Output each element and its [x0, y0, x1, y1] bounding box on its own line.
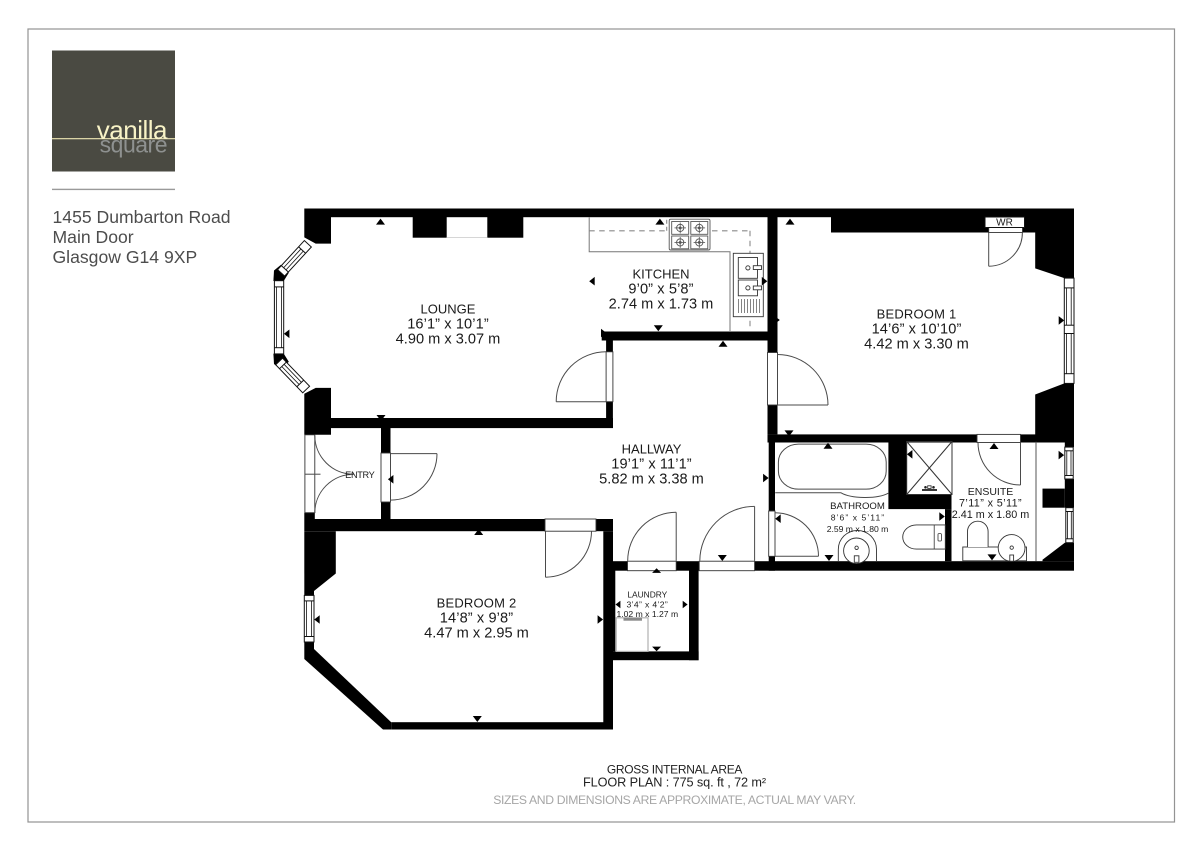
svg-text:5.82 m x 3.38 m: 5.82 m x 3.38 m — [599, 472, 704, 488]
svg-text:KITCHEN: KITCHEN — [632, 267, 689, 282]
svg-text:2.41 m x 1.80 m: 2.41 m x 1.80 m — [952, 509, 1029, 521]
svg-text:FLOOR PLAN : 775 sq. ft , 72 m: FLOOR PLAN : 775 sq. ft , 72 m² — [583, 776, 766, 790]
svg-text:19’1” x 11’1”: 19’1” x 11’1” — [611, 457, 692, 473]
svg-text:LOUNGE: LOUNGE — [421, 302, 476, 317]
svg-text:ENTRY: ENTRY — [345, 470, 374, 480]
svg-text:3’4” x 4’2”: 3’4” x 4’2” — [627, 599, 669, 609]
svg-text:BEDROOM 1: BEDROOM 1 — [877, 307, 957, 322]
svg-text:2.74 m x 1.73 m: 2.74 m x 1.73 m — [609, 297, 714, 313]
svg-text:vanilla: vanilla — [97, 115, 168, 145]
svg-text:14’8” x 9’8”: 14’8” x 9’8” — [440, 611, 513, 627]
svg-text:9’0” x 5’8”: 9’0” x 5’8” — [628, 282, 693, 298]
svg-text:WR: WR — [996, 218, 1013, 229]
svg-text:16’1” x 10’1”: 16’1” x 10’1” — [407, 317, 489, 333]
svg-text:BATHROOM: BATHROOM — [830, 501, 885, 512]
svg-text:SIZES AND DIMENSIONS ARE APPRO: SIZES AND DIMENSIONS ARE APPROXIMATE, AC… — [493, 793, 856, 807]
svg-text:HALLWAY: HALLWAY — [622, 442, 682, 457]
svg-text:2.59 m x 1.80 m: 2.59 m x 1.80 m — [827, 524, 889, 534]
svg-text:Glasgow G14 9XP: Glasgow G14 9XP — [53, 247, 198, 267]
svg-text:ENSUITE: ENSUITE — [968, 486, 1014, 498]
svg-text:14’6” x 10’10”: 14’6” x 10’10” — [872, 322, 962, 338]
svg-text:7’11” x 5’11”: 7’11” x 5’11” — [959, 498, 1022, 510]
svg-text:4.47 m x 2.95 m: 4.47 m x 2.95 m — [424, 626, 529, 642]
svg-text:8’6” x 5’11”: 8’6” x 5’11” — [831, 513, 885, 523]
svg-text:GROSS INTERNAL AREA: GROSS INTERNAL AREA — [607, 763, 743, 777]
svg-text:1.02 m x 1.27 m: 1.02 m x 1.27 m — [616, 609, 678, 619]
svg-text:4.42 m x 3.30 m: 4.42 m x 3.30 m — [864, 337, 969, 353]
svg-text:4.90 m x 3.07 m: 4.90 m x 3.07 m — [396, 332, 501, 348]
svg-text:Main Door: Main Door — [53, 227, 134, 247]
svg-text:1455 Dumbarton Road: 1455 Dumbarton Road — [53, 207, 231, 227]
svg-text:LAUNDRY: LAUNDRY — [627, 590, 667, 600]
svg-text:BEDROOM 2: BEDROOM 2 — [437, 596, 517, 611]
